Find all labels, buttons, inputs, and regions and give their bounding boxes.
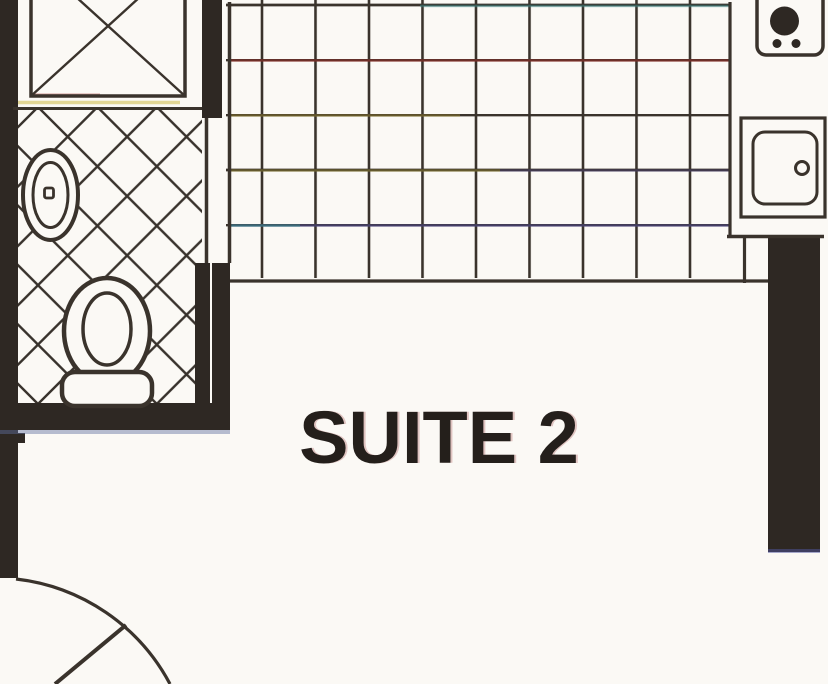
left-wall-nub	[18, 433, 25, 443]
room-label: SUITE 2	[296, 401, 582, 471]
floor-plan-drawing	[0, 0, 828, 684]
door-swing	[16, 579, 170, 684]
main-floor-tile-grid	[226, 0, 731, 278]
range-burner	[757, 0, 823, 55]
bathroom-east-wall-upper	[202, 0, 222, 118]
right-wall	[768, 238, 820, 552]
range-knob-icon	[773, 39, 782, 48]
toilet-tank	[62, 372, 152, 406]
floor-plan: SUITE 2	[0, 0, 828, 684]
shower-stall-outline	[31, 0, 185, 96]
bathroom-east-wall-lower-b	[212, 263, 230, 403]
door-swing-arc	[16, 579, 170, 684]
kitchen-sink	[741, 118, 825, 217]
scan-tint-wall-underline-right	[768, 549, 820, 553]
lavatory-sink	[23, 150, 78, 240]
door-leaf	[55, 625, 126, 684]
range-knob-icon	[792, 39, 801, 48]
shower-stall	[31, 0, 185, 96]
left-wall	[0, 0, 18, 578]
burner-icon	[770, 7, 799, 36]
toilet	[62, 278, 152, 406]
bathroom-east-wall-lower-a	[195, 263, 210, 403]
scan-tint-wall-underline	[0, 430, 230, 434]
lavatory-drain-icon	[45, 188, 54, 198]
shower-x-icon	[31, 0, 185, 96]
